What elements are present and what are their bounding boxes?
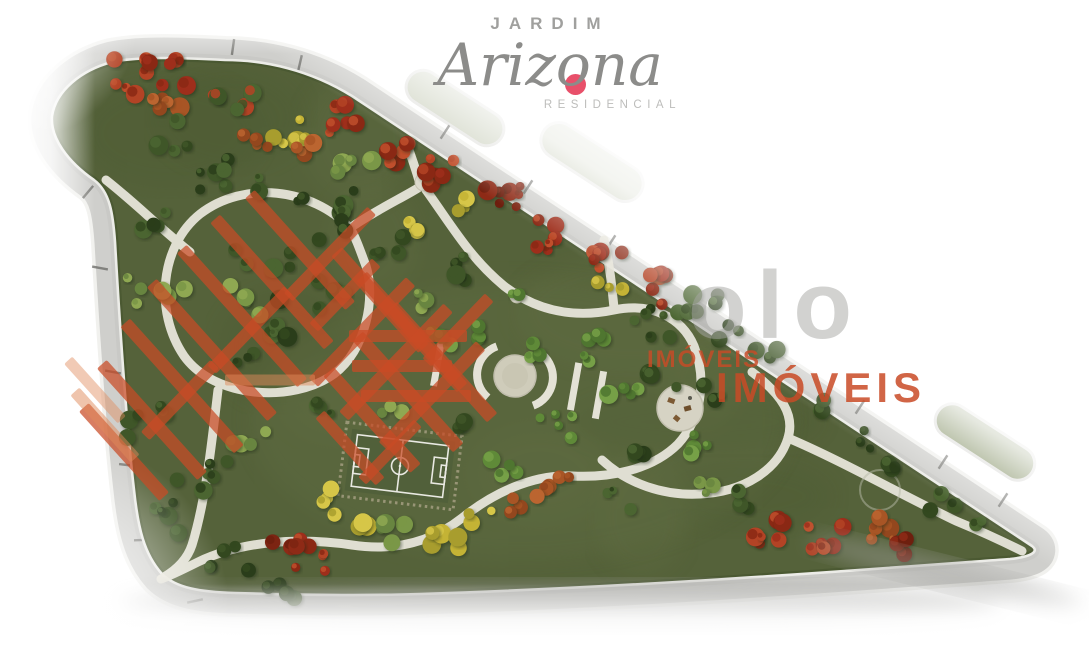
logo-residencial-text: RESIDENCIAL <box>405 99 695 111</box>
watermark-gray-text: olo <box>688 252 862 359</box>
development-logo: JARDIM Arizona RESIDENCIAL <box>405 14 695 111</box>
site-plan-rendering: olo IMÓVEIS IMÓVEIS JARDIM Arizona RESID… <box>0 0 1089 650</box>
watermark-imoveis-large: IMÓVEIS <box>716 363 926 411</box>
logo-arizona-text: Arizona <box>405 34 695 97</box>
